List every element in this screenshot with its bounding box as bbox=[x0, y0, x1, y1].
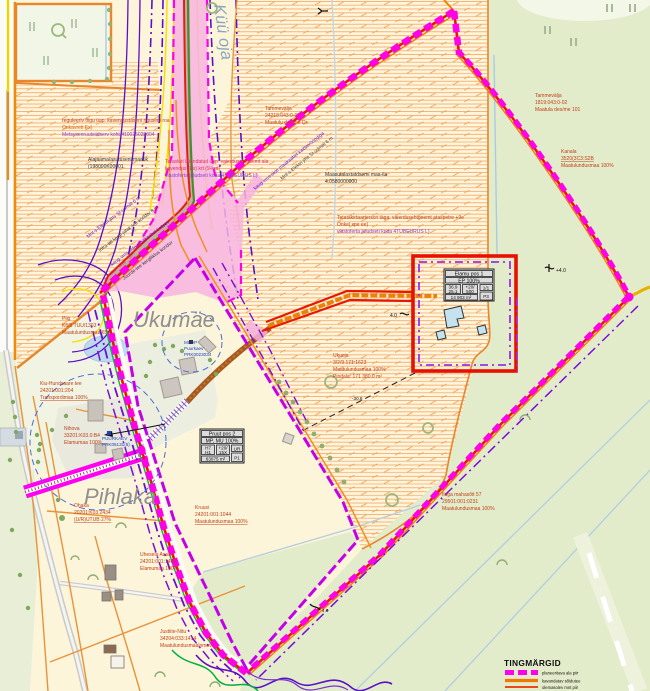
svg-text:Transpordimaa 100%: Transpordimaa 100% bbox=[40, 395, 88, 401]
svg-text:PRK0023034: PRK0023034 bbox=[184, 352, 212, 357]
svg-text:Onkel xpe ee): Onkel xpe ee) bbox=[337, 222, 368, 228]
svg-text:Ukuoja: Ukuoja bbox=[333, 353, 349, 359]
svg-text:14 903 m²: 14 903 m² bbox=[451, 295, 472, 300]
svg-text:olemasolev mnt piir: olemasolev mnt piir bbox=[542, 685, 579, 690]
svg-text:Maatulundusmaalnmove: Maatulundusmaalnmove bbox=[160, 643, 215, 649]
svg-text:Elamumaa 100%: Elamumaa 100% bbox=[64, 440, 103, 446]
svg-text:Kanala: Kanala bbox=[561, 149, 577, 155]
svg-text:Iluga mahasõit 57: Iluga mahasõit 57 bbox=[442, 492, 482, 498]
svg-text:Onkavreti Ex): Onkavreti Ex) bbox=[62, 125, 93, 131]
svg-text:24201:001:1406: 24201:001:1406 bbox=[140, 559, 176, 565]
svg-text:24201:001:1044: 24201:001:1044 bbox=[195, 512, 231, 518]
svg-text:3/2/9.171:1623: 3/2/9.171:1623 bbox=[333, 360, 367, 366]
svg-text:Teravkiri laiendatud üap: vaie: Teravkiri laiendatud üap: vaierdusehtgee… bbox=[165, 159, 269, 165]
svg-text:H1: H1 bbox=[205, 450, 211, 455]
svg-text:15X: 15X bbox=[219, 450, 227, 455]
svg-text:1/1: 1/1 bbox=[483, 286, 490, 291]
svg-text:P1: P1 bbox=[234, 456, 240, 461]
svg-text:Pruut pos 2: Pruut pos 2 bbox=[209, 432, 236, 438]
svg-text:20201:K03.2434: 20201:K03.2434 bbox=[74, 510, 111, 516]
svg-text:Maatulu des/me Dr.: Maatulu des/me Dr. bbox=[265, 120, 308, 126]
svg-text:Maatulundusmaa 100%: Maatulundusmaa 100% bbox=[333, 367, 386, 373]
svg-text:Tammevälja: Tammevälja bbox=[535, 93, 562, 99]
svg-text:Elamumaa 100%: Elamumaa 100% bbox=[140, 566, 179, 572]
svg-text:29501:001:0231: 29501:001:0231 bbox=[442, 499, 478, 505]
svg-text:Pindala: 171 380.0 m²: Pindala: 171 380.0 m² bbox=[333, 374, 382, 380]
svg-text:63075 m²: 63075 m² bbox=[206, 457, 226, 462]
svg-text:planeeritava ala piir: planeeritava ala piir bbox=[542, 671, 579, 676]
svg-text:PRK05131(5): PRK05131(5) bbox=[102, 442, 130, 447]
svg-text:EP 100%: EP 100% bbox=[458, 279, 480, 285]
svg-text:Ohaka: Ohaka bbox=[74, 503, 89, 509]
svg-text:4.0580000000: 4.0580000000 bbox=[325, 179, 357, 185]
svg-text:Maatulundusmaa 100%: Maatulundusmaa 100% bbox=[195, 519, 248, 525]
svg-text:Metsysenruutsiidserv koht 4100: Metsysenruutsiidserv koht 410025029004 bbox=[62, 132, 155, 138]
svg-text:Maatulundusmaa 100%: Maatulundusmaa 100% bbox=[442, 506, 495, 512]
svg-text:Maasutalastatdsemi maa-ila: Maasutalastatdsemi maa-ila bbox=[325, 172, 387, 178]
svg-text:4.0: 4.0 bbox=[390, 313, 397, 319]
svg-text:(U/R)UTUB 27%: (U/R)UTUB 27% bbox=[74, 517, 112, 523]
svg-text:-30.8: -30.8 bbox=[352, 396, 363, 401]
svg-text:UR: UR bbox=[234, 447, 241, 452]
svg-text:(198000K00001: (198000K00001 bbox=[88, 164, 124, 170]
svg-text:500: 500 bbox=[466, 289, 474, 294]
svg-text:Justiite-Nitu: Justiite-Nitu bbox=[160, 629, 186, 635]
svg-text:34204:033:1414: 34204:033:1414 bbox=[160, 636, 196, 642]
svg-text:Uhesela Aasa: Uhesela Aasa bbox=[140, 552, 171, 558]
svg-text:P3: P3 bbox=[483, 294, 489, 299]
svg-text:Nihova: Nihova bbox=[64, 426, 80, 432]
svg-text:Pihlaka: Pihlaka bbox=[84, 484, 156, 509]
svg-text:kavendus (Ex) krt (9-krd): kavendus (Ex) krt (9-krd) bbox=[165, 166, 220, 172]
svg-text:Kruusi: Kruusi bbox=[195, 505, 209, 511]
svg-text:MLOP: MLOP bbox=[184, 340, 197, 345]
svg-text:MP, MU 100%: MP, MU 100% bbox=[206, 439, 239, 445]
svg-text:25.1: 25.1 bbox=[449, 289, 458, 294]
svg-text:3520(3C3:S2B: 3520(3C3:S2B bbox=[561, 156, 594, 162]
svg-text:Maatulundusmaa 65%: Maatulundusmaa 65% bbox=[62, 330, 112, 336]
svg-text:K6/8 TUU/1303: K6/8 TUU/1303 bbox=[62, 323, 97, 329]
svg-text:+4.0: +4.0 bbox=[556, 268, 566, 274]
svg-text:24218:043:0-02: 24218:043:0-02 bbox=[265, 113, 300, 119]
svg-text:33201:K03.0:B4: 33201:K03.0:B4 bbox=[64, 433, 100, 439]
svg-text:PUURKAEV: PUURKAEV bbox=[102, 436, 128, 441]
svg-text:vlastoferta juludseti koda 4TU: vlastoferta juludseti koda 4TUBEURUS L) bbox=[337, 229, 430, 235]
svg-text:Maatula des/me 101: Maatula des/me 101 bbox=[535, 107, 581, 113]
svg-text:Elamu pos 1: Elamu pos 1 bbox=[455, 272, 484, 278]
svg-text:Puurkaev: Puurkaev bbox=[184, 346, 204, 351]
svg-text:Ukumäe: Ukumäe bbox=[133, 307, 215, 332]
svg-text:Tetatakirtaarterscri täga: vai: Tetatakirtaarterscri täga: vaierdusehtge… bbox=[337, 215, 464, 221]
svg-text:TINGMÄRGID: TINGMÄRGID bbox=[504, 658, 561, 668]
svg-text:4.0: 4.0 bbox=[322, 608, 329, 613]
svg-text:Tammevälja: Tammevälja bbox=[265, 106, 292, 112]
svg-text:Alajaama/asutuseni maauk: Alajaama/asutuseni maauk bbox=[88, 157, 149, 163]
svg-text:Piig: Piig bbox=[62, 316, 71, 322]
svg-text:Maatulundusmaa 100%: Maatulundusmaa 100% bbox=[561, 163, 614, 169]
svg-text:24201:001:204: 24201:001:204 bbox=[40, 388, 74, 394]
svg-text:Kiu-Hundsaare tee: Kiu-Hundsaare tee bbox=[40, 381, 82, 387]
svg-text:1819:043:0-02: 1819:043:0-02 bbox=[535, 100, 567, 106]
svg-text:vlastoferta juludseti koda 4TU: vlastoferta juludseti koda 4TUBEURUS L) bbox=[165, 173, 258, 179]
svg-text:reguleeriv õigu üap. kavendust: reguleeriv õigu üap. kavendustaseni rigu… bbox=[62, 118, 170, 124]
svg-text:kavandatav sõidutee: kavandatav sõidutee bbox=[542, 679, 581, 684]
